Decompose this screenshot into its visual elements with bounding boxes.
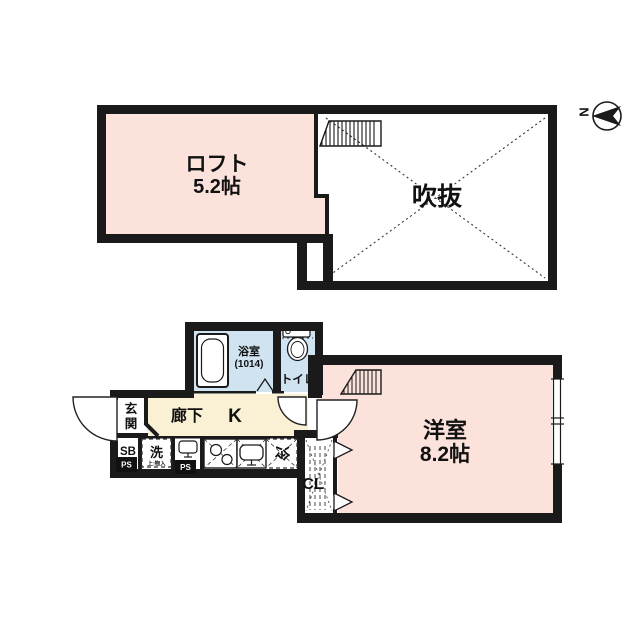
- bath-bottom-line: [185, 391, 256, 394]
- bath-toilet-divider-wall: [273, 322, 281, 392]
- entrance-label-top: 玄: [125, 401, 138, 416]
- floorplan-page: ロフト 5.2帖 吹抜 N: [0, 0, 639, 640]
- loft-bottom-wall: [97, 234, 333, 243]
- fridge-label: 冷: [273, 446, 291, 461]
- floor-plan: ロフト 5.2帖 吹抜 N: [0, 0, 639, 640]
- kitchen-label: K: [228, 406, 242, 427]
- channel-left-wall: [297, 243, 307, 290]
- bath-bottom-line-2: [272, 391, 284, 394]
- ps-label-1: PS: [121, 461, 132, 470]
- bath-label: 浴室: [238, 344, 260, 358]
- upper-top-wall: [97, 105, 557, 114]
- stove-icon: [204, 439, 237, 468]
- room-label: 洋室: [423, 418, 467, 443]
- fridge-box: 冷: [266, 439, 297, 468]
- window-right: [551, 379, 564, 464]
- loft-label: ロフト: [186, 153, 249, 176]
- counter-top-line: [142, 436, 297, 439]
- door-threshold: [308, 398, 317, 430]
- washer-label: 洗: [150, 445, 163, 460]
- north-compass: N: [577, 102, 622, 130]
- bathtub-icon: [197, 334, 228, 387]
- washer-divider: [171, 438, 175, 469]
- hallway-label: 廊下: [171, 406, 203, 425]
- front-door-arc: [73, 397, 117, 441]
- washbasin-icon: [179, 441, 197, 457]
- bath-bottom-line-3: [309, 391, 323, 394]
- shoebox-label: SB: [120, 446, 136, 458]
- entrance: 玄 関: [125, 401, 138, 431]
- upper-left-wall: [97, 105, 106, 243]
- pipe-space-1: PS: [116, 457, 137, 472]
- washer-note: 上:物入: [147, 460, 166, 468]
- upper-bottom-wall: [297, 281, 557, 290]
- washer-box: 洗 上:物入: [142, 439, 171, 468]
- stairs-icon-upper: [320, 118, 381, 148]
- channel-right-wall: [323, 243, 333, 281]
- ps-label-2: PS: [180, 463, 191, 472]
- room-top-wall: [315, 355, 562, 365]
- lower-floor-plan: 浴室 (1014) トイレ: [73, 322, 564, 523]
- bath-left-wall: [185, 322, 194, 395]
- void-label: 吹抜: [412, 183, 463, 211]
- closet-label: CL: [302, 476, 324, 493]
- pipe-space-2: PS: [175, 460, 196, 474]
- entrance-label-bottom: 関: [125, 417, 138, 431]
- upper-floor-plan: ロフト 5.2帖 吹抜: [97, 105, 557, 290]
- hall-top-wall: [110, 390, 194, 398]
- outer-bottom-wall: [110, 469, 305, 478]
- loft-size-label: 5.2帖: [193, 175, 241, 198]
- bath-top-wall: [185, 322, 323, 331]
- upper-right-wall: [548, 105, 557, 290]
- sink-icon: [237, 439, 266, 468]
- room-size-label: 8.2帖: [420, 443, 470, 466]
- north-label: N: [577, 107, 592, 116]
- bath-size-label: (1014): [235, 359, 264, 370]
